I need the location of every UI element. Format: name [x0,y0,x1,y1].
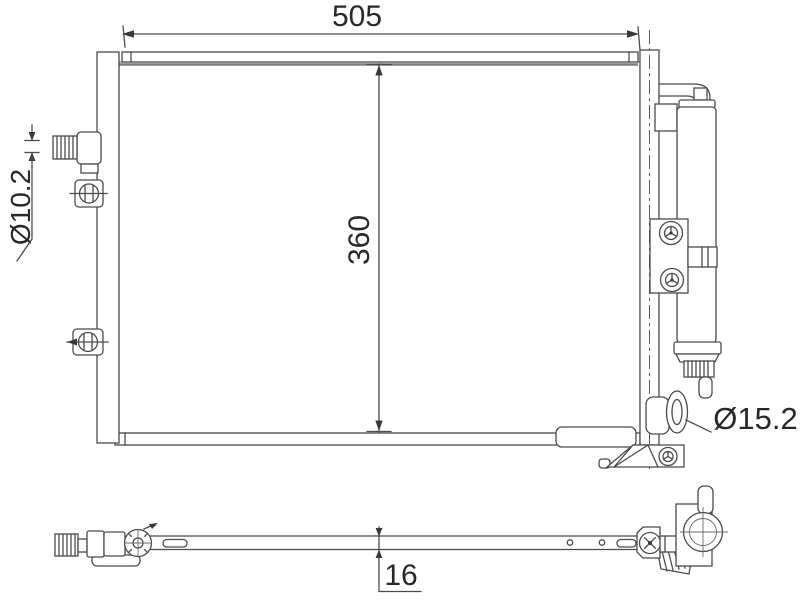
inlet-fitting [53,132,101,173]
lower-mounting-bracket [67,329,108,355]
bottom-view-inlet-fitting [55,523,158,566]
port-flange [124,529,152,557]
bottom-mounting-foot [599,445,684,468]
coupling-screw [640,533,661,554]
small-port-diameter-label: Ø10.2 [5,157,37,257]
condenser-technical-drawing: 505 360 Ø10.2 Ø15.2 16 [0,0,800,600]
width-dimension-label: 505 [327,1,387,33]
depth-dimension-label: 16 [380,560,422,592]
top-header-bar [113,52,638,65]
bottom-view-drier [637,486,728,574]
large-port-diameter-label: Ø15.2 [708,401,800,437]
height-dimension-label: 360 [343,195,377,285]
bottom-rail-block [556,427,636,447]
bottom-view-body [150,536,638,550]
torx-screw-upper [660,222,683,245]
drawing-linework [0,0,800,600]
torx-screw-lower [661,269,684,292]
upper-mounting-bracket [70,180,107,207]
left-tank [97,52,119,443]
